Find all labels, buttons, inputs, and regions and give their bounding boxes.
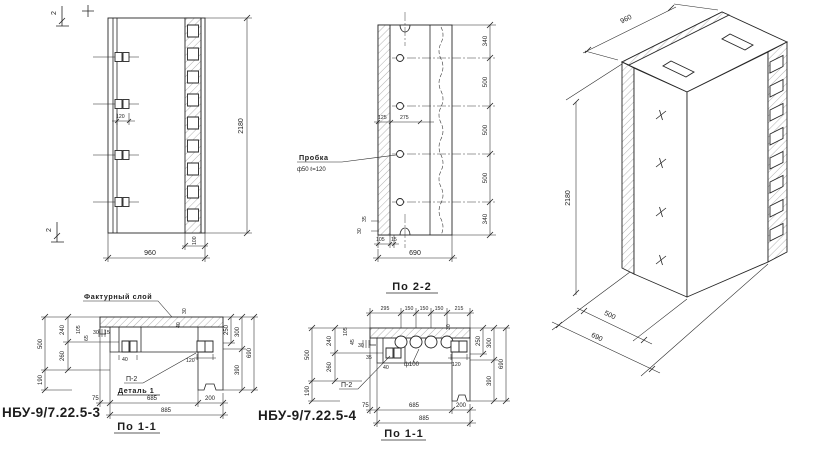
view-plan-1-1-mark4: 295 150 150 150 215 ф100 105 45 30 35 40… (258, 306, 510, 440)
dim-anchor-offset: 120 (116, 114, 125, 120)
dim-120: 120 (186, 358, 195, 364)
view-isometric: 960 2180 500 690 (552, 4, 787, 376)
dim-190: 190 (38, 374, 44, 385)
dim-75: 75 (362, 403, 369, 409)
view-section-2-2: 340 500 500 500 340 125 275 Пробка ф50 ℓ… (297, 12, 497, 293)
dim-30: 30 (357, 228, 363, 234)
section-title: По 2-2 (392, 281, 432, 293)
dim-200: 200 (205, 396, 216, 402)
cut-marker-top: 2 (51, 11, 58, 15)
dim-240: 240 (327, 335, 333, 346)
dim-240: 240 (60, 324, 66, 335)
detail-label: Деталь 1 (118, 386, 154, 395)
dim-15: 15 (104, 330, 110, 336)
embed-block-2 (197, 341, 213, 352)
dim-40: 40 (383, 365, 389, 371)
dim-500: 500 (305, 349, 311, 360)
dim-690: 690 (499, 358, 505, 369)
dim-250: 250 (476, 335, 482, 346)
dim-275: 275 (400, 115, 409, 121)
dim-190: 190 (305, 385, 311, 396)
dim-885: 885 (419, 416, 430, 422)
view-front-elevation: 2 2 120 2180 960 100 (46, 5, 252, 262)
facing-front-strip (622, 62, 634, 274)
dim-500: 500 (38, 338, 44, 349)
view-plan-1-1-mark3: Фактурный слой 105 65 30 15 40 30 40 500… (2, 292, 258, 433)
dim-340: 340 (482, 35, 489, 46)
hole-label: ф100 (404, 362, 420, 368)
dim-260: 260 (327, 361, 333, 372)
p2-label: П-2 (341, 382, 352, 389)
embed-block-2 (451, 341, 467, 352)
dim-390: 390 (487, 375, 493, 386)
block-mark-3: НБУ-9/7.22.5-3 (2, 405, 100, 420)
narrow-face (634, 68, 687, 297)
dim-105: 105 (343, 327, 349, 336)
dim-105: 105 (76, 325, 82, 334)
block-mark-4: НБУ-9/7.22.5-4 (258, 408, 356, 423)
dim-300: 300 (235, 326, 241, 337)
plug-hole (397, 55, 404, 62)
dim-75: 75 (92, 396, 99, 402)
plug-label: Пробка (299, 153, 329, 162)
dim-300: 300 (487, 337, 493, 348)
dim-500: 500 (482, 172, 489, 183)
dim-690: 690 (409, 250, 421, 257)
embed-block-1 (386, 348, 401, 358)
dim-40: 40 (122, 357, 128, 363)
dim-340: 340 (482, 213, 489, 224)
dim-40-edge: 40 (176, 322, 182, 328)
dim-30-facing: 30 (182, 308, 188, 314)
dim-35: 35 (366, 355, 372, 361)
dim-500: 500 (482, 76, 489, 87)
plug-spec: ф50 ℓ=120 (297, 166, 326, 173)
dim-295: 295 (381, 306, 390, 312)
hole-f100 (425, 336, 437, 348)
plan-view-label: По 1-1 (117, 421, 157, 433)
dim-690: 690 (247, 347, 253, 358)
dim-30: 30 (358, 343, 364, 349)
wide-face (687, 52, 768, 297)
facing-band (100, 317, 223, 327)
dim-685: 685 (409, 403, 420, 409)
dim-200: 200 (456, 403, 467, 409)
blueprint-canvas: 2 2 120 2180 960 100 340 500 500 500 340 (0, 0, 813, 456)
iso-dim-height: 2180 (565, 190, 572, 206)
dim-390: 390 (235, 364, 241, 375)
facing-layer (378, 25, 390, 235)
embed-block-1 (122, 341, 137, 352)
dim-30-facing: 30 (446, 324, 452, 330)
dim-500: 500 (482, 124, 489, 135)
dim-120: 120 (452, 362, 461, 368)
dim-215: 215 (455, 306, 464, 312)
technical-drawing-sheet: 2 2 120 2180 960 100 340 500 500 500 340 (0, 0, 813, 456)
dim-105: 105 (376, 237, 385, 243)
section-cut-marks (51, 5, 94, 242)
dim-250: 250 (224, 324, 230, 335)
dim-685: 685 (147, 396, 158, 402)
facing-band (370, 328, 470, 338)
dim-65: 65 (84, 335, 90, 341)
dim-width: 960 (144, 250, 156, 257)
dim-150: 150 (435, 306, 444, 312)
p2-label: П-2 (126, 376, 137, 383)
dim-15: 15 (391, 237, 397, 243)
plug-hole (397, 103, 404, 110)
plug-hole (397, 151, 404, 158)
facing-layer-label: Фактурный слой (84, 292, 152, 301)
iso-dim-690: 690 (590, 332, 604, 343)
cut-marker-bottom: 2 (46, 228, 53, 232)
dim-height: 2180 (238, 118, 245, 134)
key-recesses (188, 25, 199, 221)
hole-f100 (395, 336, 407, 348)
hole-f100 (410, 336, 422, 348)
plan-view-label: По 1-1 (384, 428, 424, 440)
dim-150: 150 (420, 306, 429, 312)
dim-45: 45 (350, 339, 356, 345)
plug-hole (397, 199, 404, 206)
iso-dim-width: 960 (620, 14, 634, 26)
dim-125: 125 (378, 115, 387, 121)
dim-260: 260 (60, 350, 66, 361)
body-outline (100, 327, 223, 390)
dim-150: 150 (405, 306, 414, 312)
dim-885: 885 (161, 408, 172, 414)
iso-dim-500: 500 (603, 310, 617, 321)
dim-35: 35 (362, 216, 368, 222)
dim-edge: 100 (192, 236, 198, 245)
dim-30: 30 (93, 330, 99, 336)
